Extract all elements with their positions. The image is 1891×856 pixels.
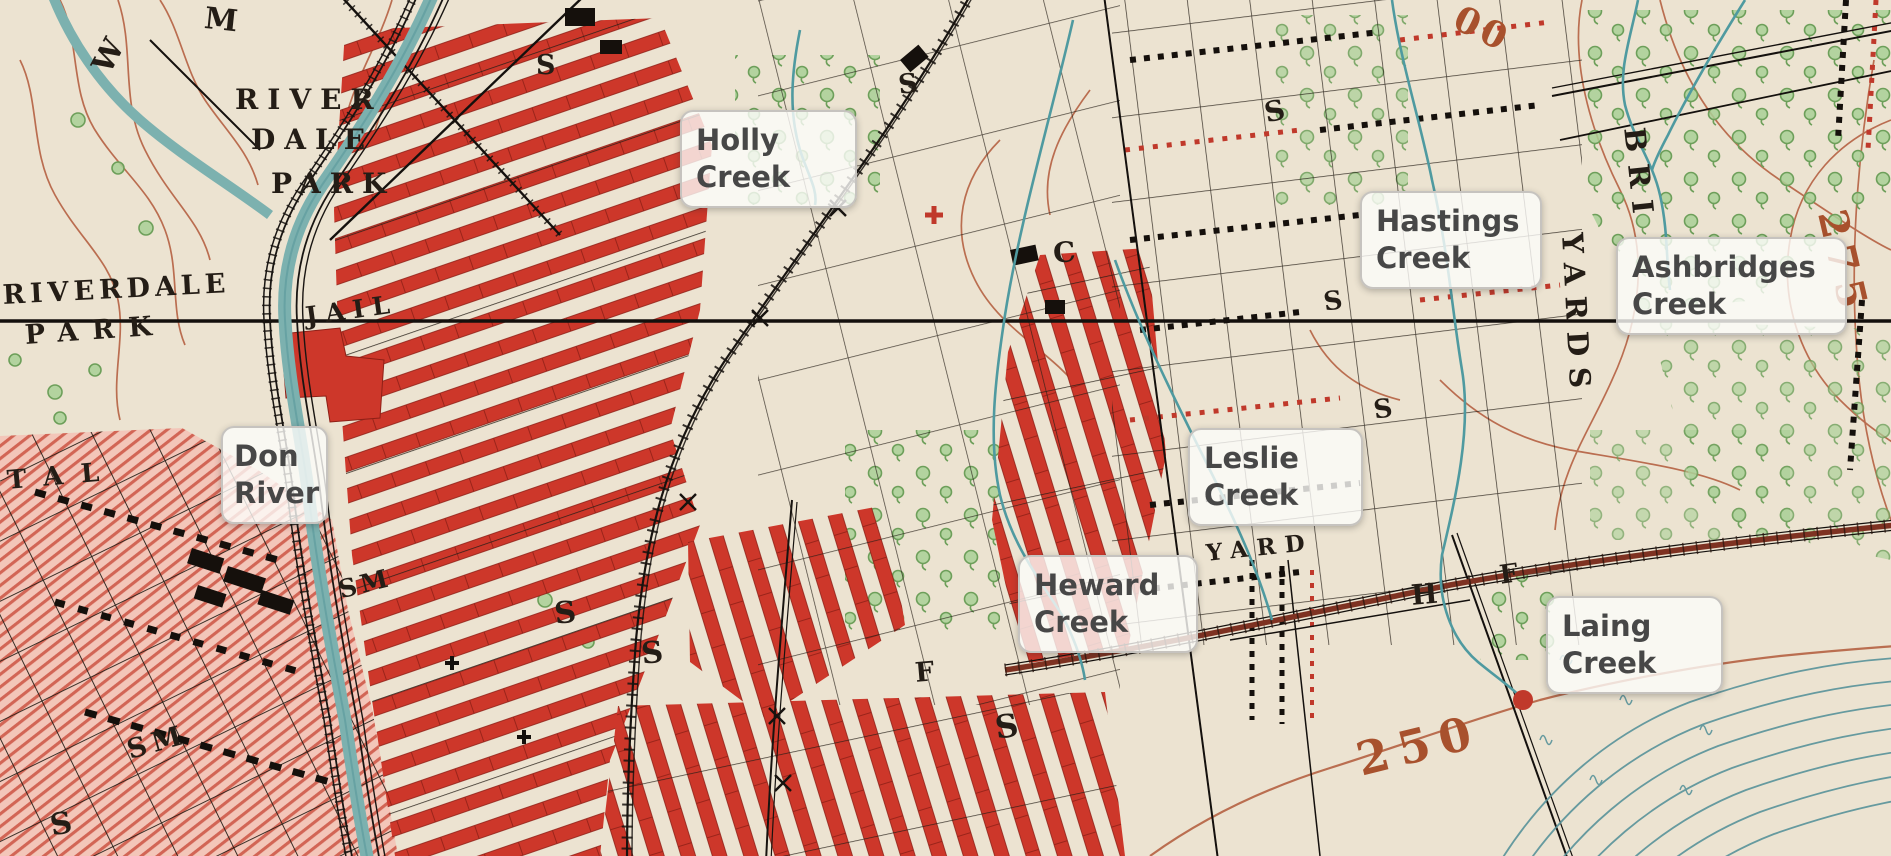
label-line: River [234,475,318,512]
map-label-ashbridges-creek[interactable]: Ashbridges Creek [1616,237,1847,335]
map-label-don-river[interactable]: Don River [221,426,328,524]
map-label-leslie-creek[interactable]: Leslie Creek [1188,428,1363,526]
label-line: Heward [1034,567,1182,604]
map-label-holly-creek[interactable]: Holly Creek [680,110,857,208]
label-line: Holly [696,122,841,159]
red-dot-marker [1513,690,1533,710]
map-text-yards: YARDS [1557,232,1595,400]
map-text-s-5: S [553,598,578,630]
map-text-s-7: S [993,709,1020,744]
map-text-s-4: S [1372,395,1394,423]
label-line: Creek [1034,604,1182,641]
map-text-s-0: S [536,52,556,79]
historic-map-viewer[interactable]: M W RIVER DALE PARK RIVERDALE PARK JAIL … [0,0,1891,856]
label-line: Ashbridges [1632,249,1831,286]
label-line: Creek [1632,286,1831,323]
map-text-f-2: F [1498,560,1520,588]
map-text-c: C [1052,238,1077,268]
map-text-f-1: F [914,658,935,687]
label-line: Hastings [1376,203,1526,240]
label-line: Creek [1562,645,1707,682]
map-text-river-top: RIVER [235,86,383,114]
map-label-heward-creek[interactable]: Heward Creek [1018,555,1198,653]
map-text-h: H [1410,580,1439,610]
map-text-s-3: S [1322,287,1344,315]
map-label-hastings-creek[interactable]: Hastings Creek [1360,191,1542,289]
map-text-m: M [203,4,239,37]
label-line: Creek [696,159,841,196]
map-text-brick: BRI [1619,126,1658,227]
map-text-s-1: S [897,70,919,99]
label-line: Leslie [1204,440,1347,477]
label-line: Creek [1376,240,1526,277]
map-text-s-6: S [640,638,665,670]
map-text-dale-top: DALE [251,126,374,154]
label-line: Creek [1204,477,1347,514]
map-text-park-top: PARK [271,170,395,198]
map-label-laing-creek[interactable]: Laing Creek [1546,596,1723,694]
label-line: Don [234,438,318,475]
label-line: Laing [1562,608,1707,645]
